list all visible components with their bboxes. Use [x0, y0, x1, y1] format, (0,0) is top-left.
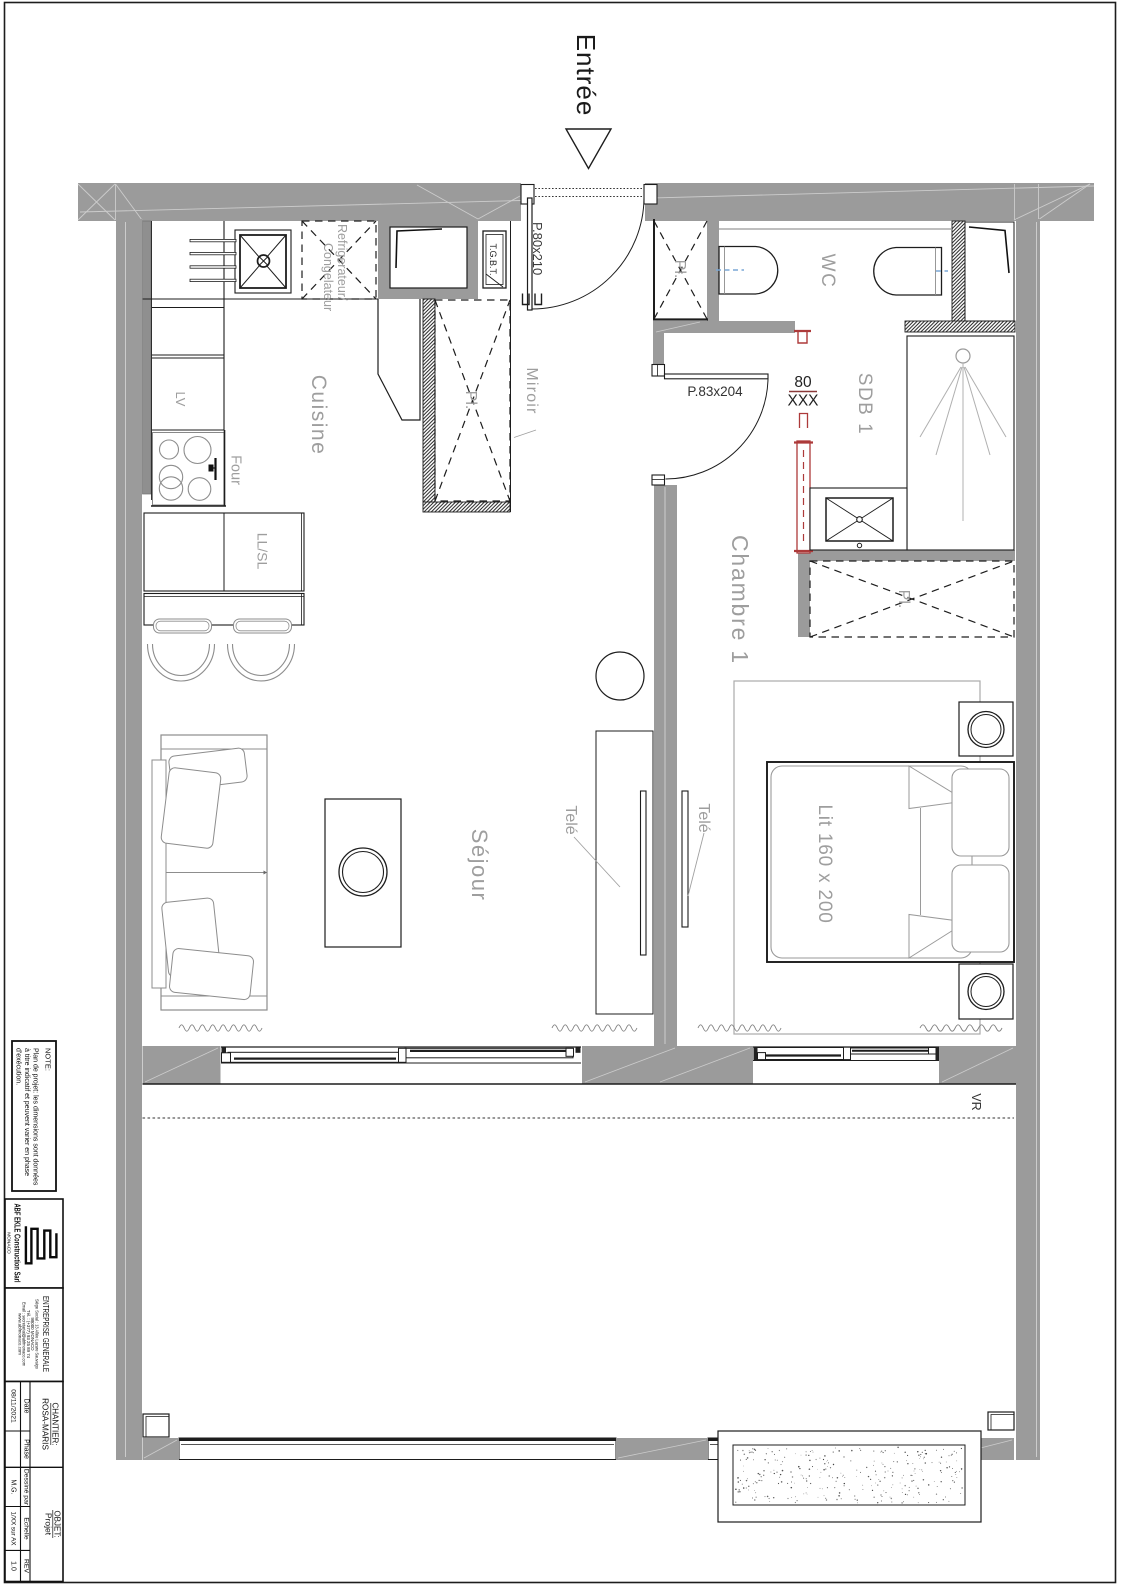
svg-text:P.80x210: P.80x210 [530, 222, 545, 275]
svg-text:Date: Date [23, 1399, 30, 1414]
svg-text:Four: Four [228, 455, 244, 485]
svg-text:1/XX sur AX: 1/XX sur AX [10, 1512, 17, 1547]
svg-text:80: 80 [794, 374, 812, 391]
svg-text:Cuisine: Cuisine [307, 375, 330, 456]
svg-text:Refrigerateur/: Refrigerateur/ [335, 224, 349, 301]
svg-text:ABF EKLE Construction Sarl: ABF EKLE Construction Sarl [13, 1204, 22, 1283]
svg-text:Dessiné par: Dessiné par [23, 1469, 30, 1506]
svg-text:LL/SL: LL/SL [255, 533, 271, 570]
svg-text:Telé: Telé [562, 805, 579, 834]
svg-text:NOTE:: NOTE: [44, 1048, 53, 1071]
svg-text:WC: WC [817, 254, 838, 289]
svg-text:M.G.: M.G. [10, 1479, 17, 1494]
svg-text:Telé: Telé [695, 803, 712, 832]
svg-text:ENTREPRISE GENERALE: ENTREPRISE GENERALE [41, 1296, 50, 1372]
svg-text:1.0: 1.0 [10, 1561, 17, 1571]
svg-text:Congelateur: Congelateur [321, 243, 335, 311]
svg-text:SDB 1: SDB 1 [854, 373, 875, 435]
svg-text:MONACO: MONACO [6, 1232, 12, 1254]
svg-text:Projet: Projet [44, 1513, 54, 1536]
svg-text:CHANTIER:: CHANTIER: [51, 1402, 60, 1445]
svg-text:Plan de projet: les dimensions: Plan de projet: les dimensions sont donn… [32, 1048, 39, 1186]
svg-text:VR: VR [969, 1093, 983, 1110]
svg-text:T.G.B.T.: T.G.B.T. [488, 243, 498, 275]
svg-text:08/11/2021: 08/11/2021 [10, 1389, 17, 1423]
svg-text:à titre indicatif et peuvent v: à titre indicatif et peuvent varier en p… [23, 1048, 30, 1176]
svg-text:Pl.: Pl. [895, 590, 912, 609]
svg-text:Lit 160 x 200: Lit 160 x 200 [814, 804, 835, 923]
svg-text:LV: LV [173, 392, 188, 407]
svg-text:REV: REV [23, 1559, 30, 1573]
svg-text:Entrée: Entrée [571, 34, 601, 117]
svg-text:Pl.: Pl. [462, 391, 479, 410]
svg-text:Phase: Phase [23, 1439, 30, 1459]
svg-text:Séjour: Séjour [467, 829, 492, 902]
svg-text:Echelle: Echelle [23, 1517, 30, 1540]
svg-text:Miroir: Miroir [523, 367, 540, 414]
svg-text:XXX: XXX [787, 393, 819, 410]
svg-text:P.83x204: P.83x204 [687, 384, 743, 399]
svg-text:Chambre 1: Chambre 1 [727, 535, 753, 665]
svg-text:ROSA-MARIS: ROSA-MARIS [41, 1398, 50, 1450]
svg-text:Pl.: Pl. [671, 260, 688, 279]
svg-text:d'exécution.: d'exécution. [15, 1048, 22, 1085]
svg-text:www.abfmonaco.com: www.abfmonaco.com [17, 1313, 22, 1355]
